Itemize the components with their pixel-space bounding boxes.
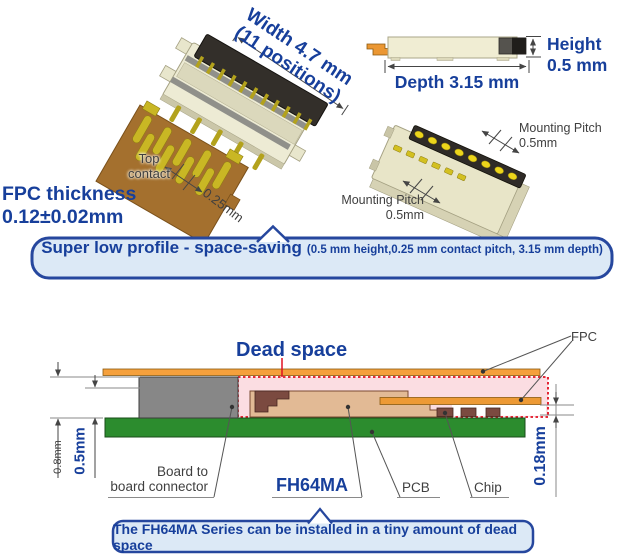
mounting-pitch-label-bottom: Mounting Pitch 0.5mm — [340, 193, 424, 222]
depth-dimension-label: Depth 3.15 mm — [388, 72, 526, 93]
b2b-connector-section — [139, 377, 238, 418]
fpc-label: FPC — [571, 329, 597, 344]
board-to-board-label: Board to board connector — [107, 464, 208, 494]
fpc-thickness-label: FPC thickness 0.12±0.02mm — [2, 183, 136, 229]
mounting-pitch-ticks-top — [482, 130, 519, 153]
chip-label: Chip — [474, 480, 502, 495]
feature-callout-detail: (0.5 mm height,0.25 mm contact pitch, 3.… — [307, 244, 603, 256]
mounting-pitch-label-top: Mounting Pitch 0.5mm — [519, 121, 602, 150]
series-name-label: FH64MA — [276, 475, 348, 496]
top-contact-label: Top contact — [116, 152, 182, 181]
stack-height-dimension: 0.8mm — [52, 440, 64, 474]
bottom-callout-text: The FH64MA Series can be installed in a … — [113, 521, 533, 552]
fpc-top-section — [103, 369, 540, 376]
pcb-section — [105, 418, 525, 437]
connector-datasheet-diagram: Width 4.7 mm (11 positions) FPC thicknes… — [0, 0, 617, 558]
height-dimension-label: Height 0.5 mm — [547, 34, 607, 75]
feature-callout-text: Super low profile - space-saving (0.5 mm… — [32, 238, 612, 278]
height-dimension-line — [526, 37, 541, 58]
dead-space-label: Dead space — [236, 339, 347, 362]
feature-callout-main: Super low profile - space-saving — [41, 238, 302, 258]
connector-height-dimension: 0.5mm — [72, 427, 89, 475]
connector-side-view — [367, 37, 526, 61]
connector-bottom-3d-view — [362, 115, 533, 246]
clearance-dimension-label: 0.18mm — [532, 426, 550, 486]
pcb-label: PCB — [402, 480, 430, 495]
fpc-strip-section — [380, 398, 541, 405]
